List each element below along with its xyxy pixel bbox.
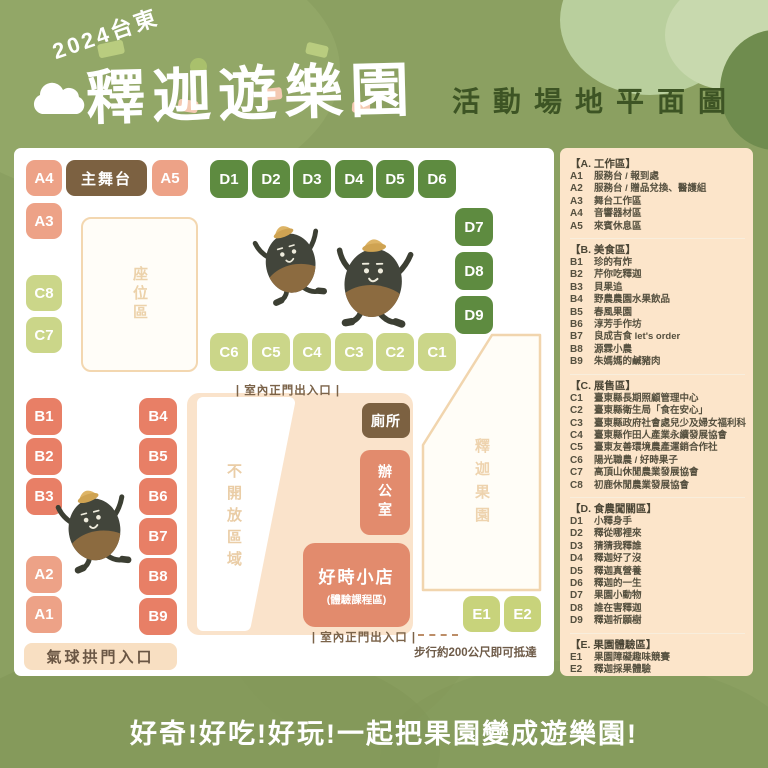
legend-panel: 【A. 工作區】A1服務台 / 報到處A2服務台 / 贈品兌換、醫護組A3舞台工…	[560, 148, 753, 676]
map-block-E2: E2	[504, 596, 541, 632]
map-block-D9: D9	[455, 296, 493, 334]
page-subtitle: 活動場地平面圖	[452, 80, 739, 120]
walking-distance-note: 步行約200公尺即可抵達	[414, 644, 552, 660]
legend-section-title: 【E. 果園體驗區】	[570, 638, 745, 652]
map-block-C7: C7	[26, 317, 62, 353]
legend-row-C4: C4臺東縣作田人產業永續發展協會	[570, 430, 745, 442]
legend-label: 果園障礙趣味競賽	[589, 652, 670, 664]
map-block-C2: C2	[376, 333, 414, 371]
legend-section: 【D. 食農闖關區】D1小釋身手D2釋從哪裡來D3猜猜我釋誰D4釋迦好了沒D5釋…	[570, 497, 745, 628]
map-block-D2: D2	[252, 160, 290, 198]
legend-label: 初鹿休閒農業發展協會	[589, 480, 689, 492]
legend-row-D2: D2釋從哪裡來	[570, 528, 745, 540]
legend-row-C8: C8初鹿休閒農業發展協會	[570, 480, 745, 492]
orchard-area-label: 釋迦果園	[471, 438, 492, 548]
legend-section-title: 【A. 工作區】	[570, 157, 745, 171]
legend-code: C8	[570, 480, 589, 492]
map-block-B2: B2	[26, 438, 62, 475]
shop: 好時小店 (體驗課程區)	[303, 543, 410, 627]
map-block-C3: C3	[335, 333, 373, 371]
legend-section: 【E. 果園體驗區】E1果園障礙趣味競賽E2釋迦採果體驗	[570, 633, 745, 676]
event-floorplan-poster: 2024台東 釋迦遊樂園 活動場地平面圖 座位區 不開放區域 釋迦果園 主舞台 …	[0, 0, 768, 768]
custard-apple-mascot	[319, 218, 429, 336]
legend-code: C1	[570, 393, 589, 405]
legend-row-D3: D3猜猜我釋誰	[570, 541, 745, 553]
legend-row-E1: E1果園障礙趣味競賽	[570, 652, 745, 664]
map-block-B1: B1	[26, 398, 62, 435]
legend-label: 臺東縣作田人產業永續發展協會	[589, 430, 727, 442]
legend-row-A1: A1服務台 / 報到處	[570, 171, 745, 183]
legend-label: 舞台工作區	[589, 196, 642, 208]
legend-label: 臺東友善環境農產運銷合作社	[589, 442, 718, 454]
custard-apple-mascot	[245, 207, 336, 308]
legend-label: 淳芳手作坊	[589, 319, 642, 331]
map-block-C1: C1	[418, 333, 456, 371]
legend-label: 音響器材區	[589, 208, 642, 220]
legend-code: C6	[570, 455, 589, 467]
legend-code: A4	[570, 208, 589, 220]
legend-code: D8	[570, 603, 589, 615]
custard-apple-mascot	[48, 473, 140, 576]
legend-row-C7: C7高頂山休閒農業發展協會	[570, 467, 745, 479]
shop-name: 好時小店	[319, 563, 395, 588]
map-block-B7: B7	[139, 518, 177, 555]
legend-label: 誰在害釋迦	[589, 603, 642, 615]
footer-tagline: 好奇!好吃!好玩!一起把果園變成遊樂園!	[0, 712, 768, 751]
legend-code: D5	[570, 566, 589, 578]
legend-label: 釋迦祈願樹	[589, 615, 642, 627]
legend-code: D7	[570, 590, 589, 602]
legend-label: 陽光職農 / 好時果子	[589, 455, 678, 467]
legend-code: B6	[570, 319, 589, 331]
venue-map: 座位區 不開放區域 釋迦果園 主舞台 廁所 辦公室 好時小店 (體驗課程區) |…	[14, 148, 554, 676]
map-block-A1: A1	[26, 596, 62, 633]
legend-code: B9	[570, 356, 589, 368]
legend-label: 來賓休息區	[589, 221, 642, 233]
legend-code: B4	[570, 294, 589, 306]
legend-code: D3	[570, 541, 589, 553]
legend-row-B6: B6淳芳手作坊	[570, 319, 745, 331]
legend-row-B1: B1珍的有炸	[570, 257, 745, 269]
map-block-D5: D5	[376, 160, 414, 198]
legend-row-B5: B5春風果園	[570, 307, 745, 319]
legend-label: 源霖小農	[589, 344, 632, 356]
legend-row-C5: C5臺東友善環境農產運銷合作社	[570, 442, 745, 454]
legend-label: 良成吉食 let's order	[589, 331, 680, 343]
map-block-C6: C6	[210, 333, 248, 371]
legend-row-D4: D4釋迦好了沒	[570, 553, 745, 565]
legend-section: 【B. 美食區】B1珍的有炸B2芹你吃釋迦B3貝果追B4野農農園水果飲品B5春風…	[570, 238, 745, 369]
legend-label: 釋迦採果體驗	[589, 664, 651, 676]
legend-row-A4: A4音響器材區	[570, 208, 745, 220]
office-label: 辦公室	[375, 464, 395, 521]
legend-code: B8	[570, 344, 589, 356]
map-block-C4: C4	[293, 333, 331, 371]
legend-section-title: 【D. 食農闖關區】	[570, 502, 745, 516]
legend-code: B5	[570, 307, 589, 319]
legend-code: E2	[570, 664, 589, 676]
legend-code: A2	[570, 183, 589, 195]
map-block-A4: A4	[26, 160, 62, 196]
legend-code: A1	[570, 171, 589, 183]
legend-label: 猜猜我釋誰	[589, 541, 642, 553]
map-block-C8: C8	[26, 275, 62, 311]
balloon-arch-entrance: 氣球拱門入口	[24, 643, 177, 670]
map-block-B8: B8	[139, 558, 177, 595]
legend-code: D6	[570, 578, 589, 590]
background-texture-blob	[665, 0, 768, 90]
legend-section-title: 【C. 展售區】	[570, 379, 745, 393]
legend-code: D2	[570, 528, 589, 540]
page-title: 釋迦遊樂園	[85, 41, 447, 135]
toilet: 廁所	[362, 403, 410, 438]
legend-row-B4: B4野農農園水果飲品	[570, 294, 745, 306]
legend-row-C2: C2臺東縣衛生局「食在安心」	[570, 405, 745, 417]
map-block-B9: B9	[139, 598, 177, 635]
legend-label: 臺東縣政府社會處兒少及婦女福利科	[589, 418, 746, 430]
main-stage: 主舞台	[66, 160, 147, 196]
legend-row-D7: D7果園小動物	[570, 590, 745, 602]
map-block-D8: D8	[455, 252, 493, 290]
legend-code: B3	[570, 282, 589, 294]
legend-row-B9: B9朱媽媽的鹹豬肉	[570, 356, 745, 368]
legend-row-B8: B8源霖小農	[570, 344, 745, 356]
legend-label: 釋迦好了沒	[589, 553, 642, 565]
legend-row-C6: C6陽光職農 / 好時果子	[570, 455, 745, 467]
legend-code: D1	[570, 516, 589, 528]
legend-label: 臺東縣長期照顧管理中心	[589, 393, 699, 405]
legend-row-A2: A2服務台 / 贈品兌換、醫護組	[570, 183, 745, 195]
map-block-A5: A5	[152, 160, 188, 196]
legend-code: C2	[570, 405, 589, 417]
map-block-D7: D7	[455, 208, 493, 246]
legend-code: C5	[570, 442, 589, 454]
legend-code: C3	[570, 418, 589, 430]
legend-code: D4	[570, 553, 589, 565]
legend-code: D9	[570, 615, 589, 627]
legend-label: 珍的有炸	[589, 257, 632, 269]
legend-label: 朱媽媽的鹹豬肉	[589, 356, 661, 368]
office: 辦公室	[360, 450, 410, 535]
legend-label: 小釋身手	[589, 516, 632, 528]
legend-row-B3: B3貝果追	[570, 282, 745, 294]
map-block-E1: E1	[463, 596, 500, 632]
legend-row-D6: D6釋迦的一生	[570, 578, 745, 590]
legend-row-A3: A3舞台工作區	[570, 196, 745, 208]
shop-subtitle: (體驗課程區)	[327, 592, 387, 607]
map-block-B5: B5	[139, 438, 177, 475]
legend-code: B2	[570, 269, 589, 281]
cloud-icon	[28, 76, 90, 118]
legend-row-D8: D8誰在害釋迦	[570, 603, 745, 615]
legend-row-A5: A5來賓休息區	[570, 221, 745, 233]
legend-label: 釋迦真營養	[589, 566, 642, 578]
legend-row-C3: C3臺東縣政府社會處兒少及婦女福利科	[570, 418, 745, 430]
legend-label: 貝果追	[589, 282, 623, 294]
legend-code: A3	[570, 196, 589, 208]
map-block-D3: D3	[293, 160, 331, 198]
legend-code: C4	[570, 430, 589, 442]
map-block-D6: D6	[418, 160, 456, 198]
indoor-entrance-label-bottom: | 室內正門出入口 |	[296, 629, 432, 645]
legend-row-D9: D9釋迦祈願樹	[570, 615, 745, 627]
legend-label: 釋迦的一生	[589, 578, 642, 590]
legend-section: 【A. 工作區】A1服務台 / 報到處A2服務台 / 贈品兌換、醫護組A3舞台工…	[570, 157, 745, 233]
legend-label: 釋從哪裡來	[589, 528, 642, 540]
legend-label: 春風果園	[589, 307, 632, 319]
legend-label: 野農農園水果飲品	[589, 294, 670, 306]
legend-row-B2: B2芹你吃釋迦	[570, 269, 745, 281]
legend-label: 果園小動物	[589, 590, 642, 602]
indoor-entrance-label-top: | 室內正門出入口 |	[188, 382, 388, 398]
legend-code: B7	[570, 331, 589, 343]
legend-section: 【C. 展售區】C1臺東縣長期照顧管理中心C2臺東縣衛生局「食在安心」C3臺東縣…	[570, 374, 745, 492]
walking-path-dashes	[418, 634, 458, 636]
legend-code: E1	[570, 652, 589, 664]
legend-code: B1	[570, 257, 589, 269]
map-block-A3: A3	[26, 203, 62, 239]
map-block-D1: D1	[210, 160, 248, 198]
legend-code: A5	[570, 221, 589, 233]
legend-code: C7	[570, 467, 589, 479]
legend-label: 芹你吃釋迦	[589, 269, 642, 281]
legend-row-E2: E2釋迦採果體驗	[570, 664, 745, 676]
legend-row-D1: D1小釋身手	[570, 516, 745, 528]
legend-row-D5: D5釋迦真營養	[570, 566, 745, 578]
legend-label: 服務台 / 贈品兌換、醫護組	[589, 183, 706, 195]
legend-row-C1: C1臺東縣長期照顧管理中心	[570, 393, 745, 405]
legend-section-title: 【B. 美食區】	[570, 243, 745, 257]
legend-label: 臺東縣衛生局「食在安心」	[589, 405, 708, 417]
legend-label: 服務台 / 報到處	[589, 171, 659, 183]
legend-row-B7: B7良成吉食 let's order	[570, 331, 745, 343]
legend-label: 高頂山休閒農業發展協會	[589, 467, 699, 479]
map-block-B4: B4	[139, 398, 177, 435]
map-block-D4: D4	[335, 160, 373, 198]
map-block-C5: C5	[252, 333, 290, 371]
map-block-B6: B6	[139, 478, 177, 515]
